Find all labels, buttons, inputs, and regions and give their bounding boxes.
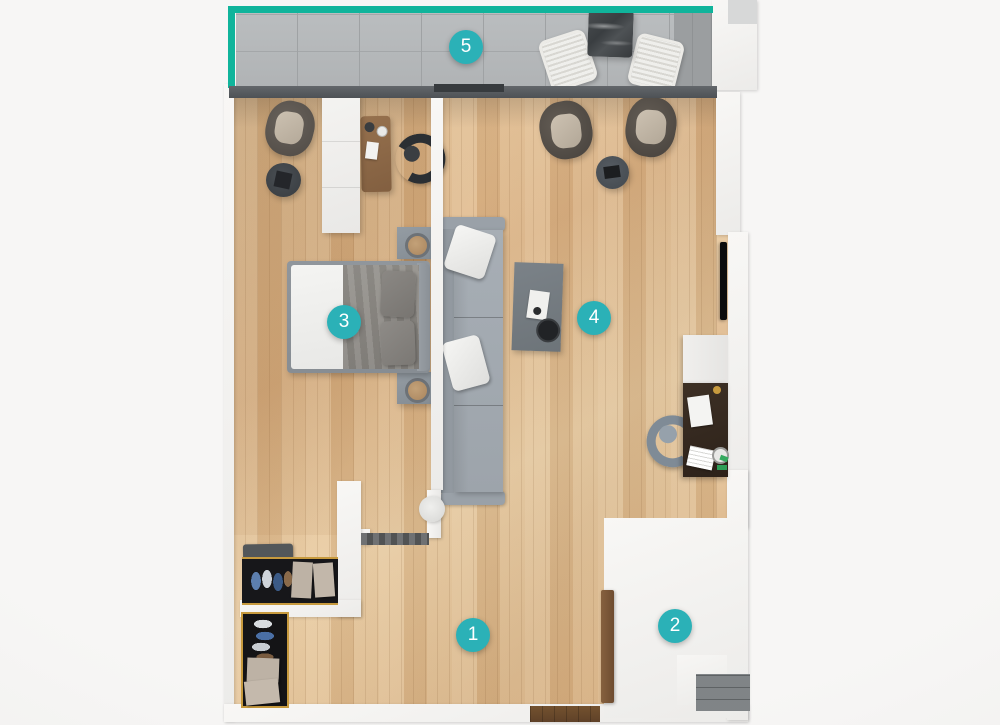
- ottoman-tray: [274, 171, 293, 190]
- sofa-seam: [454, 317, 503, 318]
- nightstand-lamp: [405, 378, 430, 403]
- entry-doormat: [696, 674, 750, 711]
- desk-laptop: [365, 141, 379, 159]
- nightstand-bottom: [397, 372, 433, 404]
- coffee-table: [511, 262, 563, 352]
- table-tray: [536, 318, 561, 343]
- armchair-cushion: [273, 110, 306, 146]
- room-number: 4: [589, 307, 600, 329]
- bathroom-door-leaf[interactable]: [601, 590, 614, 703]
- sofa: [441, 217, 507, 505]
- entrance-door-threshold[interactable]: [530, 706, 600, 722]
- bedroom-door-threshold: [361, 533, 429, 545]
- shoe-cabinet-vertical: [241, 612, 289, 708]
- desk-item-dark: [364, 122, 374, 132]
- desk-paper: [687, 395, 713, 428]
- door-pivot-knob: [419, 496, 445, 522]
- wall-corner-block: [728, 0, 757, 24]
- desk-item-light: [377, 126, 388, 137]
- room-badge-balcony[interactable]: 5: [449, 30, 483, 64]
- balcony-table: [587, 9, 634, 58]
- work-desk: [683, 383, 728, 477]
- room-badge-living-room[interactable]: 4: [577, 301, 611, 335]
- storage-box: [244, 678, 280, 705]
- storage-box: [291, 562, 313, 599]
- balcony-edge-left: [228, 6, 235, 88]
- sofa-armrest-bottom: [441, 491, 505, 505]
- divider-wall: [431, 98, 443, 490]
- room-number: 3: [339, 311, 350, 333]
- living-side-table: [596, 156, 629, 189]
- bed-pillow-2: [380, 320, 416, 365]
- room-number: 1: [468, 624, 479, 646]
- storage-box: [313, 562, 335, 597]
- shoe-cabinet-horizontal: [242, 557, 338, 605]
- tv-screen: [720, 242, 727, 320]
- room-badge-bathroom[interactable]: 2: [658, 609, 692, 643]
- room-number: 2: [670, 615, 681, 637]
- nightstand-top: [397, 227, 433, 259]
- table-book: [526, 290, 550, 321]
- armchair-cushion: [550, 113, 583, 150]
- side-table-book: [603, 165, 621, 179]
- floor-plan-canvas: 1 2 3 4 5: [0, 0, 1000, 725]
- right-wall-upper: [716, 92, 740, 235]
- room-badge-bedroom[interactable]: 3: [327, 305, 361, 339]
- nightstand-lamp: [405, 233, 430, 258]
- left-outer-wall: [224, 84, 234, 720]
- media-cabinet: [683, 335, 728, 383]
- book-dot: [533, 306, 542, 315]
- desk-green-item: [717, 465, 727, 470]
- bedroom-ottoman: [266, 163, 301, 197]
- wardrobe: [322, 94, 360, 233]
- balcony-edge-top: [228, 6, 713, 13]
- bedroom-desk: [360, 116, 391, 193]
- entry-wall-vertical: [337, 481, 361, 617]
- armchair-cushion: [635, 109, 667, 145]
- desk-documents: [686, 446, 716, 471]
- desk-gold-item: [713, 386, 721, 394]
- room-badge-hallway[interactable]: 1: [456, 618, 490, 652]
- bed-pillow-1: [380, 270, 416, 318]
- balcony-sliding-door: [434, 84, 504, 92]
- sofa-seam: [454, 405, 503, 406]
- room-number: 5: [461, 36, 472, 58]
